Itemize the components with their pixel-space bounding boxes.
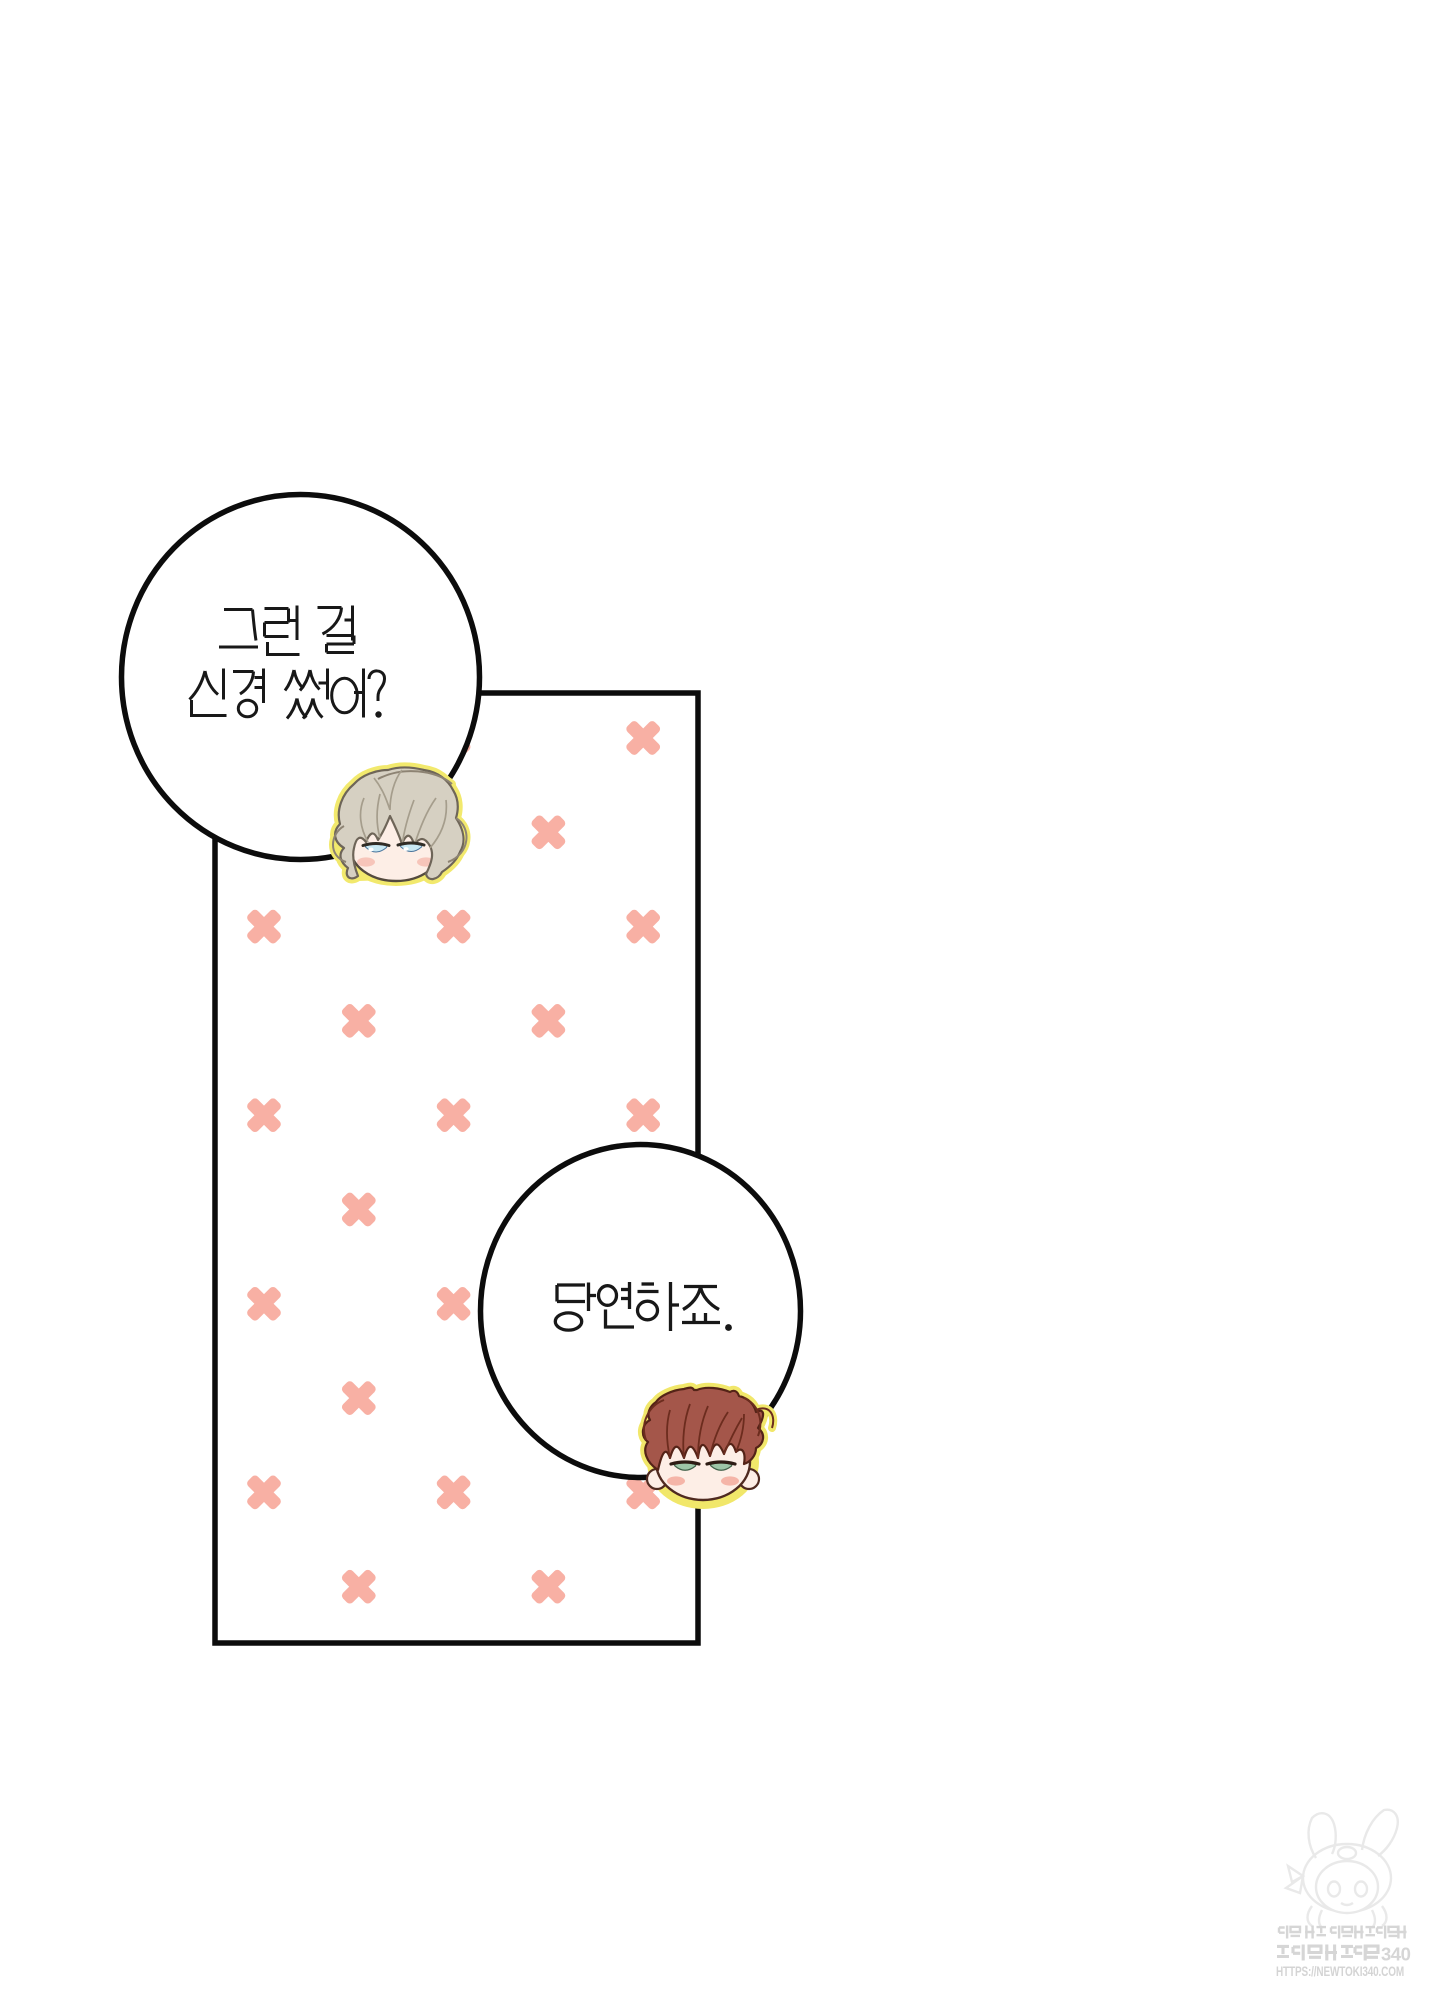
svg-text:340: 340 [1381, 1944, 1411, 1965]
svg-text:HTTPS://NEWTOKI340.COM: HTTPS://NEWTOKI340.COM [1276, 1964, 1404, 1979]
